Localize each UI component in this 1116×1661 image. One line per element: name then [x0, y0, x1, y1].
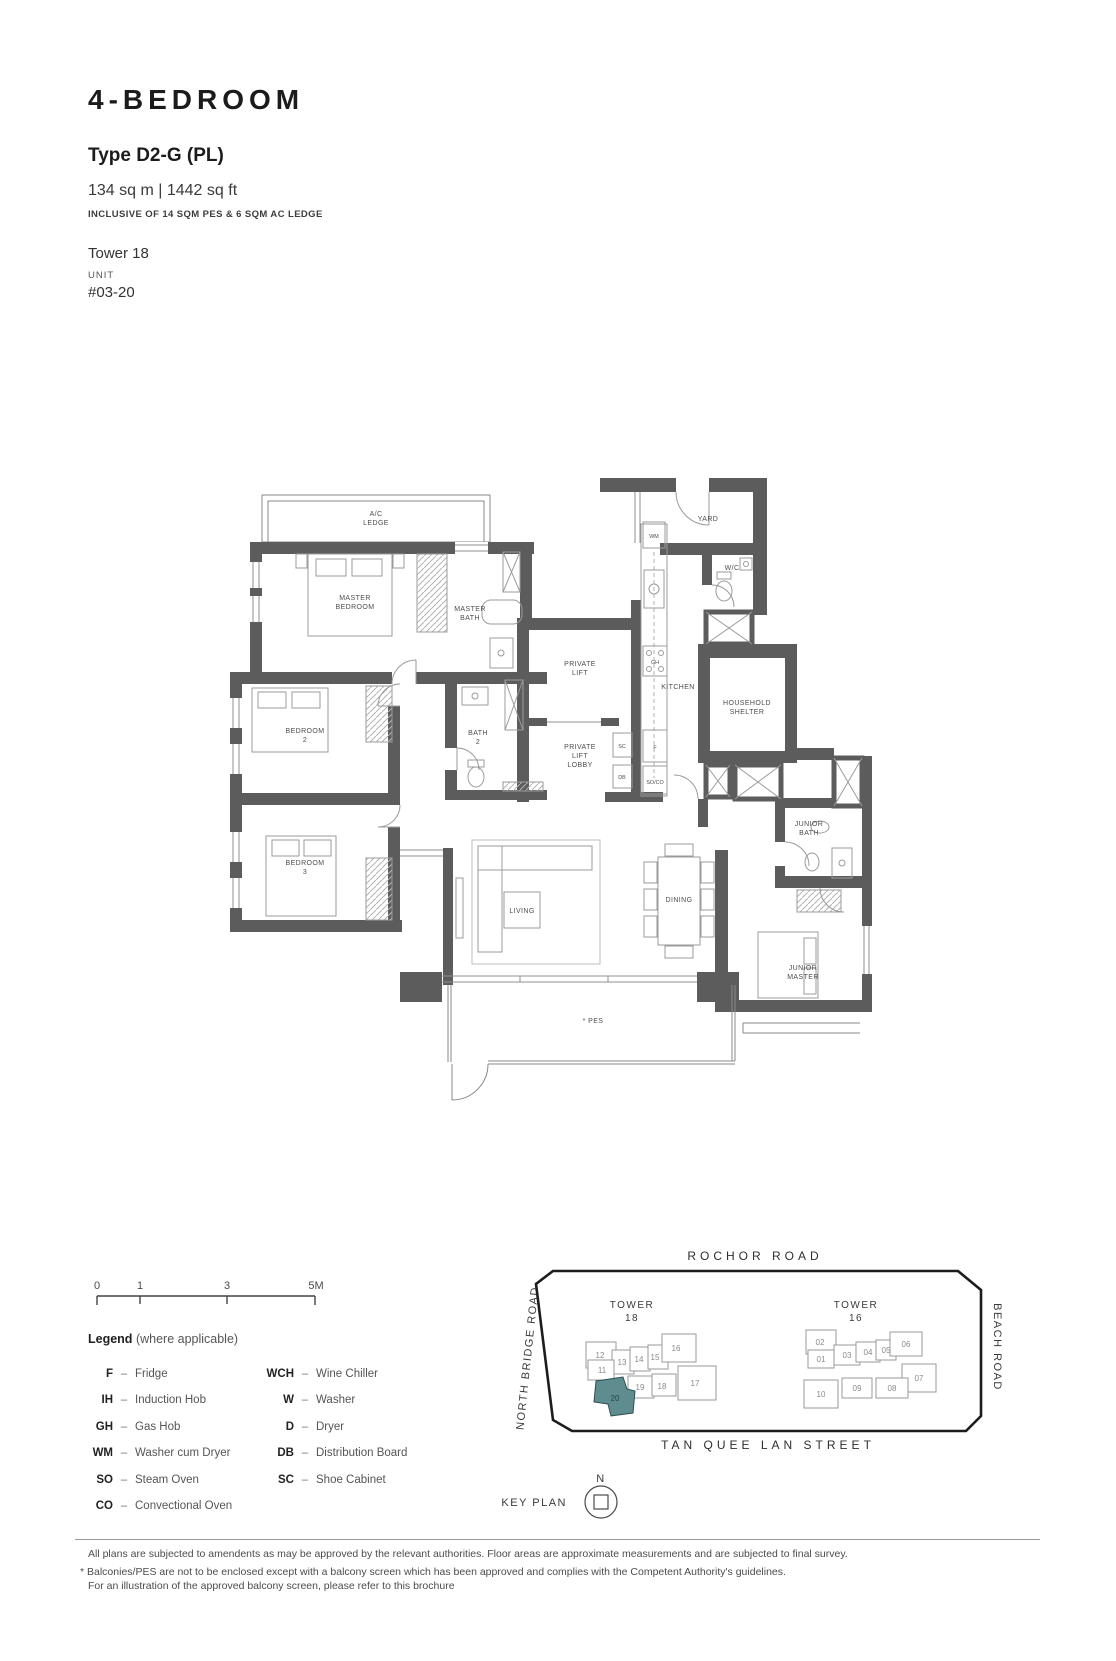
svg-text:3: 3: [303, 869, 307, 876]
label-living: LIVING: [509, 908, 534, 915]
legend-column-1: F–Fridge IH–Induction Hob GH–Gas Hob WM–…: [85, 1368, 265, 1526]
unit-20-number: 20: [611, 1394, 620, 1403]
svg-text:04: 04: [864, 1348, 873, 1357]
svg-text:03: 03: [843, 1351, 852, 1360]
unit-number: #03-20: [88, 284, 135, 301]
area-inclusive-note: INCLUSIVE OF 14 SQM PES & 6 SQM AC LEDGE: [88, 209, 323, 220]
svg-text:02: 02: [816, 1338, 825, 1347]
tower18-name: TOWER: [610, 1300, 655, 1311]
svg-text:09: 09: [853, 1384, 862, 1393]
svg-text:15: 15: [651, 1353, 660, 1362]
legend-row: IH–Induction Hob: [85, 1394, 265, 1420]
svg-text:05: 05: [882, 1346, 891, 1355]
label-kitchen: KITCHEN: [661, 684, 695, 691]
svg-text:08: 08: [888, 1384, 897, 1393]
svg-text:BATH: BATH: [460, 615, 480, 622]
svg-text:06: 06: [902, 1340, 911, 1349]
legend-row: WM–Washer cum Dryer: [85, 1447, 265, 1473]
svg-text:14: 14: [635, 1355, 644, 1364]
label-bedroom3: BEDROOM: [286, 860, 325, 867]
svg-text:07: 07: [915, 1374, 924, 1383]
road-rochor: ROCHOR ROAD: [687, 1249, 822, 1263]
scale-0: 0: [94, 1280, 100, 1292]
scale-5m: 5M: [308, 1280, 323, 1292]
label-gh: GH: [651, 660, 659, 666]
unit-type: Type D2-G (PL): [88, 145, 224, 167]
disclaimer-line-2: * Balconies/PES are not to be enclosed e…: [80, 1566, 1040, 1578]
svg-text:2: 2: [476, 739, 480, 746]
label-pes: * PES: [583, 1018, 604, 1025]
svg-text:SHELTER: SHELTER: [730, 709, 765, 716]
svg-text:LOBBY: LOBBY: [567, 762, 592, 769]
svg-text:LIFT: LIFT: [572, 670, 588, 677]
plan-windows: [230, 492, 872, 982]
legend-row: W–Washer: [258, 1394, 448, 1420]
label-dining: DINING: [666, 897, 693, 904]
svg-text:13: 13: [618, 1358, 627, 1367]
disclaimer-line-3: For an illustration of the approved balc…: [80, 1580, 1048, 1592]
label-so-co: SO/CO: [646, 780, 663, 786]
label-f: F: [653, 745, 657, 751]
svg-text:19: 19: [636, 1383, 645, 1392]
svg-text:2: 2: [303, 737, 307, 744]
label-yard: YARD: [698, 516, 719, 523]
label-db: DB: [618, 775, 626, 781]
scale-bar-line: [97, 1296, 315, 1305]
road-beach: BEACH ROAD: [991, 1303, 1003, 1391]
north-label: N: [596, 1473, 605, 1485]
label-private-lift-lobby: PRIVATE: [564, 744, 596, 751]
label-junior-bath: JUNIOR: [795, 821, 823, 828]
legend-row: SO–Steam Oven: [85, 1474, 265, 1500]
key-plan-label: KEY PLAN: [501, 1497, 567, 1509]
svg-text:17: 17: [691, 1379, 700, 1388]
svg-text:LIFT: LIFT: [572, 753, 588, 760]
label-wm: WM: [649, 534, 659, 540]
road-tan-quee-lan: TAN QUEE LAN STREET: [661, 1438, 875, 1452]
label-master-bath: MASTER: [454, 606, 486, 613]
svg-text:18: 18: [658, 1382, 667, 1391]
label-sc: SC: [618, 744, 626, 750]
svg-text:16: 16: [672, 1344, 681, 1353]
tower16-name: TOWER: [834, 1300, 879, 1311]
label-wc: W/C: [725, 565, 740, 572]
label-household-shelter: HOUSEHOLD: [723, 700, 771, 707]
legend-row: WCH–Wine Chiller: [258, 1368, 448, 1394]
page-title: 4-BEDROOM: [88, 84, 304, 116]
north-compass-icon: [585, 1486, 617, 1518]
scale-3: 3: [224, 1280, 230, 1292]
svg-text:11: 11: [598, 1366, 607, 1375]
legend-row: SC–Shoe Cabinet: [258, 1474, 448, 1500]
label-junior-master: JUNIOR: [789, 965, 817, 972]
disclaimer-line-1: All plans are subjected to amendents as …: [80, 1548, 1048, 1560]
tower18-number: 18: [625, 1313, 639, 1324]
scale-bar: 0 1 3 5M: [85, 1275, 335, 1311]
footer-divider: [75, 1539, 1040, 1540]
label-bedroom2: BEDROOM: [286, 728, 325, 735]
legend-row: D–Dryer: [258, 1421, 448, 1447]
label-master-bedroom: MASTER: [339, 595, 371, 602]
scale-1: 1: [137, 1280, 143, 1292]
legend-row: F–Fridge: [85, 1368, 265, 1394]
tower16-number: 16: [849, 1313, 863, 1324]
legend-row: DB–Distribution Board: [258, 1447, 448, 1473]
legend-row: GH–Gas Hob: [85, 1421, 265, 1447]
legend-row: CO–Convectional Oven: [85, 1500, 265, 1526]
legend-title: Legend (where applicable): [88, 1332, 238, 1346]
svg-text:LEDGE: LEDGE: [363, 520, 389, 527]
tower-label: Tower 18: [88, 245, 149, 262]
svg-text:MASTER: MASTER: [787, 974, 819, 981]
label-private-lift: PRIVATE: [564, 661, 596, 668]
svg-text:01: 01: [817, 1355, 826, 1364]
svg-text:10: 10: [817, 1390, 826, 1399]
label-ac-ledge: A/C: [370, 511, 383, 518]
unit-area: 134 sq m | 1442 sq ft: [88, 182, 237, 200]
svg-text:12: 12: [596, 1351, 605, 1360]
floor-plan: A/C LEDGE MASTER BEDROOM MASTER BATH BED…: [220, 448, 880, 1120]
unit-caption: UNIT: [88, 270, 114, 281]
svg-text:BATH: BATH: [799, 830, 819, 837]
key-plan: ROCHOR ROAD TAN QUEE LAN STREET NORTH BR…: [470, 1240, 1030, 1525]
legend-subtitle: (where applicable): [136, 1332, 238, 1346]
label-bath2: BATH: [468, 730, 488, 737]
legend-title-bold: Legend: [88, 1332, 132, 1346]
svg-text:BEDROOM: BEDROOM: [336, 604, 375, 611]
legend-column-2: WCH–Wine Chiller W–Washer D–Dryer DB–Dis…: [258, 1368, 448, 1500]
brochure-page: 4-BEDROOM Type D2-G (PL) 134 sq m | 1442…: [0, 0, 1116, 1661]
road-north-bridge: NORTH BRIDGE ROAD: [514, 1286, 541, 1431]
ac-ledge-outline: [262, 495, 490, 542]
